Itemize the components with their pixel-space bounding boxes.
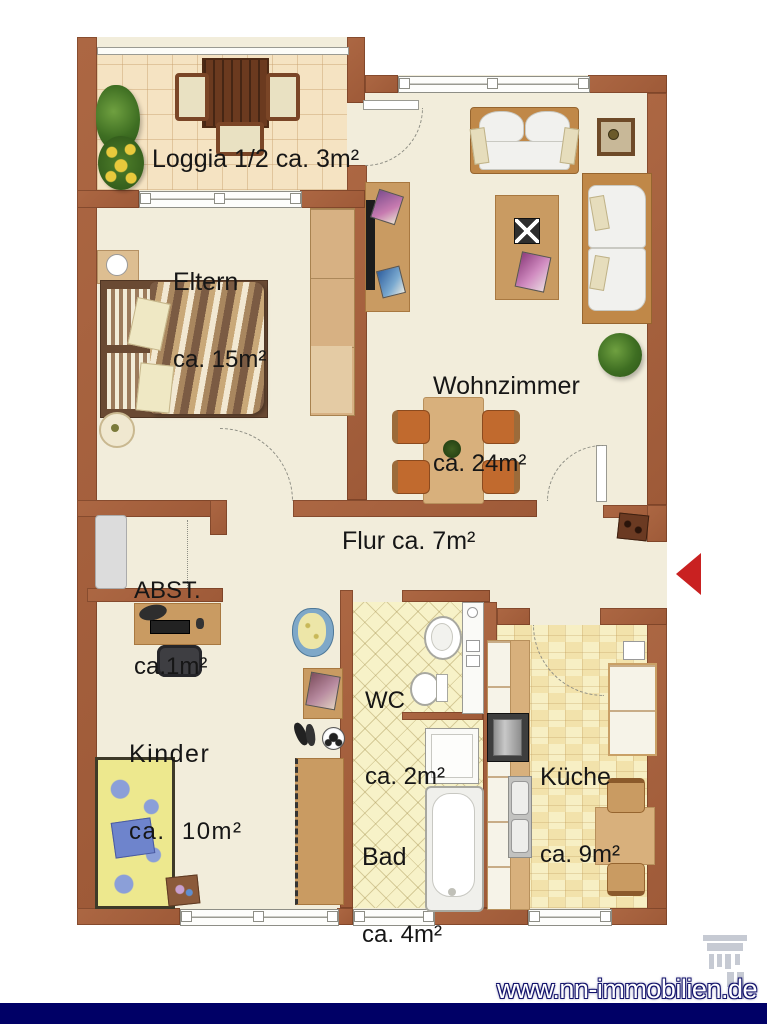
wardrobe-lower: [311, 346, 352, 413]
sofa-seat: [479, 141, 570, 170]
wall-segment: [497, 608, 530, 625]
room-label-kinder: Kinder ca. 10m²: [129, 688, 243, 897]
pillar-icon: [725, 954, 731, 969]
pillar-icon: [735, 954, 740, 965]
wall-picture-center: [608, 129, 619, 140]
balcony-chair: [266, 73, 300, 121]
room-name: Bad: [362, 844, 442, 870]
dining-chair: [392, 410, 430, 444]
bedside-lamp: [106, 254, 128, 276]
room-name: Eltern: [173, 269, 266, 295]
room-size: ca. 15m²: [173, 347, 266, 372]
wall-segment: [647, 505, 667, 542]
wall-segment: [647, 608, 667, 925]
wall-segment: [347, 37, 365, 103]
room-name: Kinder: [129, 741, 243, 767]
balcony-table: [202, 58, 269, 128]
kids-wardrobe: [295, 758, 344, 905]
balcony-chair: [175, 73, 209, 121]
room-size: ca. 24m²: [433, 451, 580, 476]
balcony-railing: [97, 47, 349, 55]
window: [180, 909, 339, 926]
soccer-ball: [322, 727, 345, 750]
kitchen-counter-strip: [510, 640, 530, 910]
footer-bar: [0, 1003, 767, 1024]
stool-detail: [111, 424, 119, 432]
room-size: ca. 4m²: [362, 922, 442, 947]
wall-segment: [337, 908, 353, 925]
room-name: ABST.: [134, 578, 207, 603]
wall-segment: [402, 590, 490, 602]
room-label-loggia: Loggia 1/2 ca. 3m²: [152, 146, 359, 172]
wall-segment: [77, 37, 97, 925]
chess-board: [514, 218, 540, 244]
room-label-bad: Bad ca. 4m²: [362, 791, 442, 1000]
storage-cabinet: [95, 515, 127, 589]
room-size: ca. 10m²: [129, 819, 243, 844]
bed-cushion: [136, 362, 175, 413]
room-label-eltern: Eltern ca. 15m²: [173, 216, 266, 425]
wall-segment: [77, 190, 139, 208]
room-size: ca.1m²: [134, 654, 207, 679]
sink-basin: [511, 819, 529, 853]
baby-bathtub-inner: [298, 613, 326, 649]
shelf-detail: [466, 655, 480, 667]
wall-segment: [300, 190, 365, 208]
window: [139, 191, 302, 208]
pillar-icon: [703, 935, 747, 941]
wall-niche: [623, 641, 645, 660]
sink-basin: [511, 781, 529, 815]
wall-segment: [600, 608, 667, 625]
pillar-icon: [707, 943, 743, 951]
shelf-detail: [466, 640, 480, 652]
kitchen-counter: [487, 640, 512, 910]
entrance-arrow-icon: [676, 553, 701, 595]
doormat: [617, 513, 650, 542]
cushion-patterned: [305, 672, 340, 711]
wall-segment: [365, 75, 398, 93]
floorplan-page: Loggia 1/2 ca. 3m² Eltern ca. 15m² Wohnz…: [0, 0, 767, 1024]
shelf-detail: [467, 607, 478, 618]
wall-segment: [77, 908, 180, 925]
window: [398, 76, 590, 93]
bathtub-drain: [448, 888, 456, 896]
website-url: www.nn-immobilien.de: [400, 974, 757, 1005]
room-size: ca. 2m²: [365, 764, 445, 789]
wall-segment: [210, 500, 227, 535]
room-name: Wohnzimmer: [433, 373, 580, 399]
room-label-wohnzimmer: Wohnzimmer ca. 24m²: [433, 320, 580, 529]
stove-front: [493, 719, 522, 756]
dining-chair: [392, 460, 430, 494]
outside-area: [365, 37, 667, 75]
pillar-icon: [709, 954, 714, 969]
room-label-flur: Flur ca. 7m²: [342, 528, 475, 554]
houseplant: [598, 333, 642, 377]
wall-segment: [588, 75, 667, 93]
sunflowers: [98, 136, 144, 190]
pillar-icon: [717, 954, 722, 967]
room-label-kueche: Küche ca. 9m²: [540, 711, 620, 920]
room-size: ca. 9m²: [540, 842, 620, 867]
room-name: Küche: [540, 764, 620, 790]
room-name: WC: [365, 688, 445, 713]
